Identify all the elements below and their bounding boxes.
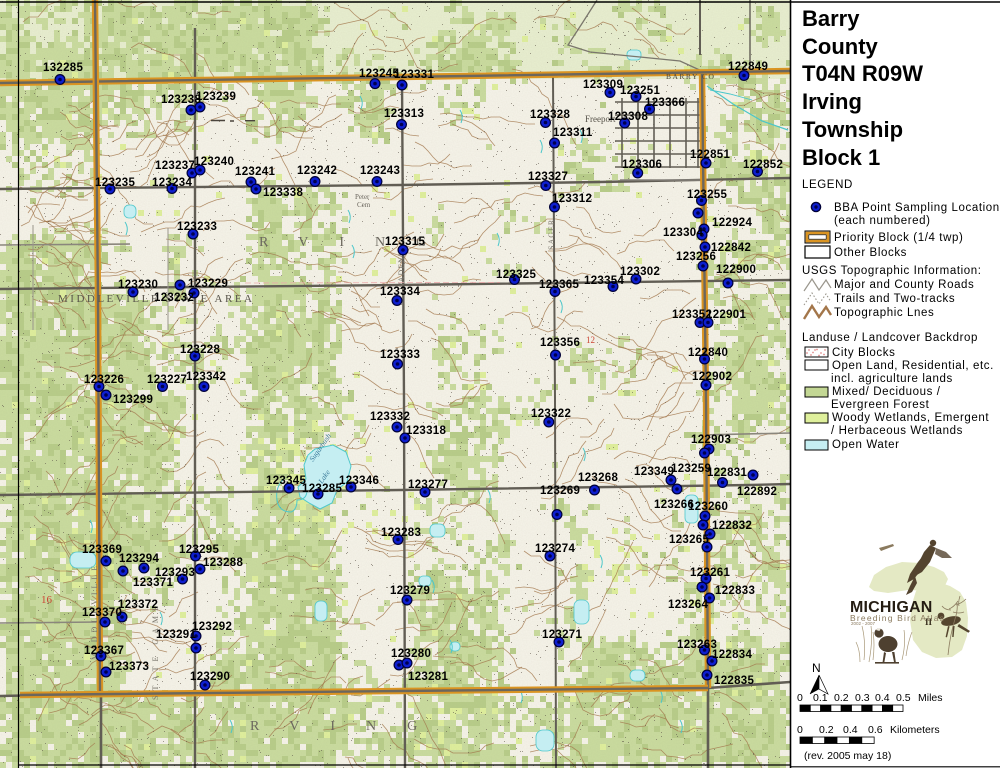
svg-text:County: County [802,34,879,59]
svg-text:123265: 123265 [669,534,709,546]
svg-text:Barry: Barry [802,6,860,31]
svg-text:122924: 122924 [712,217,752,229]
svg-text:BARRY CO: BARRY CO [666,72,715,81]
svg-text:123309: 123309 [583,79,623,91]
svg-text:USGS Topographic Information:: USGS Topographic Information: [802,265,982,277]
svg-text:123281: 123281 [408,671,448,683]
svg-text:II: II [925,617,933,627]
svg-text:SAGER: SAGER [547,219,556,250]
svg-text:WADENL: WADENL [397,250,406,290]
svg-text:Evergreen Forest: Evergreen Forest [831,399,930,411]
svg-text:123294: 123294 [119,553,159,565]
svg-text:Cem: Cem [357,201,371,209]
svg-text:123255: 123255 [687,189,727,201]
svg-text:123322: 123322 [531,408,571,420]
svg-text:123345: 123345 [266,475,306,487]
svg-text:123306: 123306 [622,159,662,171]
svg-text:0.2: 0.2 [819,724,834,736]
svg-text:122849: 122849 [728,61,768,73]
svg-text:123271: 123271 [542,629,582,641]
svg-text:0.2: 0.2 [834,692,849,704]
svg-text:Township: Township [802,117,903,142]
svg-text:123367: 123367 [84,645,124,657]
svg-text:LEGEND: LEGEND [802,179,853,191]
svg-text:122901: 122901 [706,309,746,321]
svg-text:122842: 122842 [711,242,751,254]
svg-text:123338: 123338 [263,187,303,199]
svg-text:123235: 123235 [95,177,135,189]
svg-text:/ Herbaceous Wetlands: / Herbaceous Wetlands [831,425,963,437]
svg-text:123299: 123299 [113,394,153,406]
svg-text:123325: 123325 [496,269,536,281]
svg-text:123332: 123332 [370,411,410,423]
svg-text:Open Land, Residential, etc.: Open Land, Residential, etc. [832,360,994,372]
svg-text:122851: 122851 [690,149,730,161]
svg-text:(each numbered): (each numbered) [834,215,931,227]
svg-text:123228: 123228 [180,344,220,356]
svg-text:123312: 123312 [552,193,592,205]
svg-text:Mixed/ Deciduous /: Mixed/ Deciduous / [832,386,941,398]
svg-text:123259: 123259 [671,463,711,475]
svg-text:0.5: 0.5 [896,692,911,704]
svg-text:RVING: RVING [250,719,448,734]
svg-text:City Blocks: City Blocks [832,347,895,359]
svg-text:123365: 123365 [539,279,579,291]
svg-text:0: 0 [797,692,803,704]
svg-text:122852: 122852 [743,159,783,171]
svg-text:123274: 123274 [535,543,575,555]
svg-text:123327: 123327 [528,171,568,183]
svg-text:122834: 122834 [712,649,752,661]
svg-text:123292: 123292 [192,621,232,633]
svg-text:0.1: 0.1 [813,692,828,704]
svg-text:123371: 123371 [133,577,173,589]
svg-text:123369: 123369 [82,544,122,556]
svg-text:123295: 123295 [179,544,219,556]
svg-text:123328: 123328 [530,109,570,121]
svg-text:Block 1: Block 1 [802,145,880,170]
svg-text:123318: 123318 [406,425,446,437]
svg-text:123269: 123269 [540,485,580,497]
svg-text:123227: 123227 [147,374,187,386]
svg-text:122892: 122892 [737,486,777,498]
svg-text:123264: 123264 [668,599,708,611]
svg-text:123233: 123233 [177,221,217,233]
svg-text:123356: 123356 [540,337,580,349]
svg-text:123256: 123256 [676,251,716,263]
svg-text:123261: 123261 [690,567,730,579]
svg-text:123283: 123283 [381,527,421,539]
svg-text:123372: 123372 [118,599,158,611]
svg-text:Trails and Two-tracks: Trails and Two-tracks [834,293,955,305]
svg-text:Other Blocks: Other Blocks [834,247,907,259]
svg-text:123370: 123370 [82,607,122,619]
svg-text:123302: 123302 [620,266,660,278]
svg-text:123290: 123290 [190,671,230,683]
svg-text:123346: 123346 [339,475,379,487]
svg-text:16: 16 [41,594,53,606]
svg-text:STATE GAME: STATE GAME [151,601,160,700]
svg-text:BBA Point Sampling Locations: BBA Point Sampling Locations [834,202,1000,214]
svg-text:123239: 123239 [196,91,236,103]
svg-text:123373: 123373 [109,661,149,673]
svg-text:123241: 123241 [235,166,275,178]
svg-text:123311: 123311 [553,127,593,139]
svg-text:123280: 123280 [391,648,431,660]
svg-text:12: 12 [586,335,595,345]
svg-text:0.6: 0.6 [868,724,883,736]
svg-text:122902: 122902 [692,371,732,383]
svg-text:0: 0 [797,724,803,736]
svg-text:122903: 122903 [691,434,731,446]
svg-text:incl. agriculture lands: incl. agriculture lands [831,373,953,385]
svg-text:T04N R09W: T04N R09W [802,61,923,86]
svg-text:122835: 122835 [714,675,754,687]
svg-text:123288: 123288 [203,557,243,569]
svg-text:Open Water: Open Water [832,439,900,451]
svg-text:123331: 123331 [394,69,434,81]
svg-text:123349: 123349 [634,466,674,478]
svg-text:122840: 122840 [688,347,728,359]
svg-text:0.3: 0.3 [855,692,870,704]
svg-text:123237: 123237 [155,160,195,172]
svg-text:122832: 122832 [712,520,752,532]
svg-text:123308: 123308 [608,111,648,123]
svg-text:123333: 123333 [380,349,420,361]
svg-text:Irving: Irving [802,89,862,114]
svg-text:123291: 123291 [156,629,196,641]
svg-text:123285: 123285 [302,483,342,495]
svg-text:Landuse / Landcover Backdrop: Landuse / Landcover Backdrop [802,332,978,344]
svg-text:123260: 123260 [688,501,728,513]
svg-text:0.4: 0.4 [875,692,890,704]
svg-text:122831: 122831 [707,467,747,479]
svg-text:Miles: Miles [918,692,943,704]
svg-text:123304: 123304 [663,227,703,239]
svg-text:Topographic Lnes: Topographic Lnes [834,307,934,319]
svg-text:122833: 122833 [715,585,755,597]
svg-text:123232: 123232 [154,292,194,304]
svg-text:123354: 123354 [584,275,624,287]
svg-text:123234: 123234 [152,177,192,189]
svg-text:123279: 123279 [390,585,430,597]
svg-text:122900: 122900 [716,264,756,276]
svg-text:123230: 123230 [118,279,158,291]
svg-text:123240: 123240 [194,156,234,168]
svg-text:123226: 123226 [84,374,124,386]
svg-text:123313: 123313 [384,108,424,120]
svg-text:123366: 123366 [645,97,685,109]
svg-text:123229: 123229 [188,278,228,290]
svg-text:123277: 123277 [408,479,448,491]
svg-text:0.4: 0.4 [843,724,858,736]
svg-text:Major and County Roads: Major and County Roads [834,279,974,291]
svg-text:123334: 123334 [380,286,420,298]
svg-text:123242: 123242 [297,165,337,177]
svg-text:123268: 123268 [578,472,618,484]
svg-text:(rev. 2005 may 18): (rev. 2005 may 18) [804,750,891,762]
svg-text:123342: 123342 [186,371,226,383]
svg-text:N: N [812,661,821,675]
svg-text:2002 - 2007: 2002 - 2007 [851,621,876,626]
svg-text:132285: 132285 [43,62,83,74]
svg-text:Kilometers: Kilometers [890,724,940,736]
svg-text:123315: 123315 [385,236,425,248]
svg-text:123251: 123251 [620,85,660,97]
svg-text:Peter: Peter [355,193,370,201]
svg-text:RVING: RVING [259,235,457,250]
svg-text:Woody Wetlands, Emergent: Woody Wetlands, Emergent [832,412,989,424]
svg-text:Priority Block (1/4 twp): Priority Block (1/4 twp) [834,232,963,244]
svg-text:123243: 123243 [360,165,400,177]
